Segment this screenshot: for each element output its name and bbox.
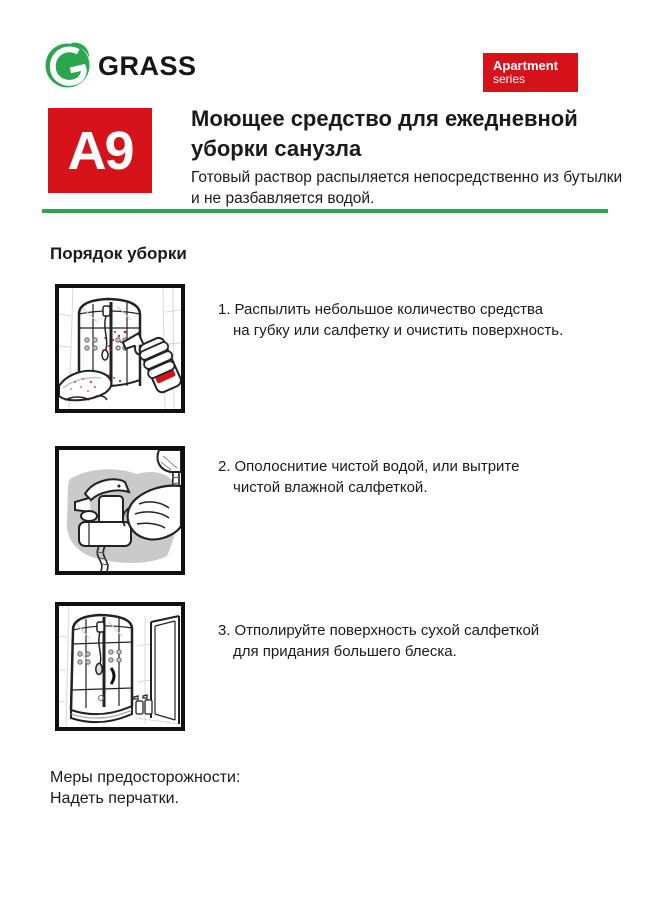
step-3-text: 3.Отполируйте поверхность сухой салфетко…: [218, 620, 539, 662]
product-code-box: A9: [48, 108, 152, 193]
page-title-line2: уборки санузла: [191, 134, 578, 164]
step-1-line2: на губку или салфетку и очистить поверхн…: [218, 320, 563, 341]
step-3-number: 3.: [218, 622, 231, 639]
green-divider: [42, 209, 608, 213]
step-3-line1: Отполируйте поверхность сухой салфеткой: [235, 622, 540, 639]
brand-name: GRASS: [98, 51, 197, 82]
step-2-text: 2.Ополоснитие чистой водой, или вытрите …: [218, 456, 519, 498]
page-title-line1: Моющее средство для ежедневной: [191, 104, 578, 134]
step-3-illustration: [55, 602, 185, 731]
step-1-number: 1.: [218, 301, 231, 318]
step-1-line1: Распылить небольшое количество средства: [235, 301, 544, 318]
step-1-illustration: [55, 284, 185, 413]
section-heading: Порядок уборки: [50, 244, 187, 264]
precautions-line2: Надеть перчатки.: [50, 788, 240, 809]
step-1-text: 1.Распылить небольшое количество средств…: [218, 299, 563, 341]
step-2-illustration: [55, 446, 185, 575]
page-subtitle-line2: и не разбавляется водой.: [191, 188, 622, 209]
page-subtitle: Готовый раствор распыляется непосредстве…: [191, 167, 622, 209]
step-2-number: 2.: [218, 458, 231, 475]
product-code: A9: [67, 120, 132, 182]
precautions-line1: Меры предосторожности:: [50, 767, 240, 788]
page-title: Моющее средство для ежедневной уборки са…: [191, 104, 578, 164]
series-badge: Apartment series: [483, 53, 578, 92]
series-badge-line2: series: [493, 73, 578, 86]
step-2-line2: чистой влажной салфеткой.: [218, 477, 519, 498]
step-2-line1: Ополоснитие чистой водой, или вытрите: [235, 458, 520, 475]
step-3-line2: для придания большего блеска.: [218, 641, 539, 662]
series-badge-line1: Apartment: [493, 59, 578, 73]
precautions: Меры предосторожности: Надеть перчатки.: [50, 767, 240, 809]
page-subtitle-line1: Готовый раствор распыляется непосредстве…: [191, 167, 622, 188]
instruction-sheet: GRASS Apartment series A9 Моющее средств…: [0, 0, 650, 918]
grass-logo-icon: [44, 41, 91, 88]
